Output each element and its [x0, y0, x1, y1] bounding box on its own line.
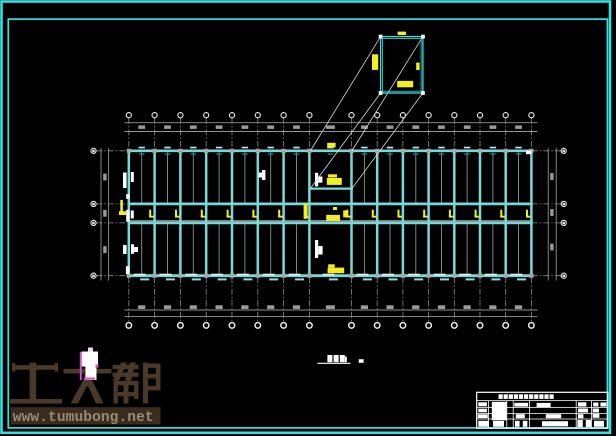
- svg-text:www.tumubong.net: www.tumubong.net: [13, 410, 154, 426]
